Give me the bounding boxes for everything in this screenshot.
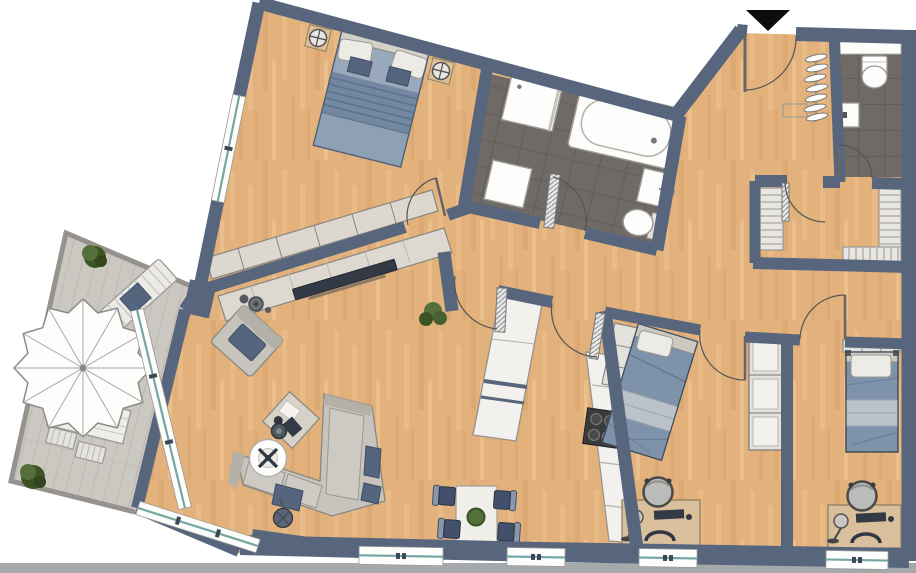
dining-chair xyxy=(437,518,460,539)
floor-plan xyxy=(0,0,916,573)
decor-bowl xyxy=(265,307,271,313)
keyboard xyxy=(654,509,684,520)
living-door-leaf xyxy=(495,288,507,332)
keyboard xyxy=(856,512,886,523)
wall-storage-top-c xyxy=(872,183,909,184)
window-kid1 xyxy=(639,548,697,567)
wall-top-right xyxy=(796,34,909,37)
nightstand-lamp-left xyxy=(305,25,332,52)
guest-toilet xyxy=(862,56,887,88)
wall-kid2-top xyxy=(845,342,909,344)
window-dining xyxy=(507,547,565,566)
dining-chair xyxy=(432,485,455,506)
sofa-chaise-cushion xyxy=(326,408,364,500)
kid2-bed xyxy=(845,350,899,452)
mouse xyxy=(888,516,894,522)
wall-storage-bottom xyxy=(753,263,909,267)
dining-chair xyxy=(493,489,516,510)
decor-bowl xyxy=(240,295,249,304)
kid1-chair xyxy=(644,478,673,507)
sofa-pillow xyxy=(361,483,381,504)
floor-plan-page xyxy=(0,0,916,573)
window-living xyxy=(359,546,443,565)
shelf-left xyxy=(760,188,783,250)
washing-machine xyxy=(484,160,532,208)
wall-living-pier xyxy=(444,252,452,311)
sofa-pillow xyxy=(364,446,381,478)
desk-lamp-head xyxy=(834,514,848,528)
nightstand-lamp-right xyxy=(428,58,455,85)
shelf-right xyxy=(879,188,901,250)
coffee-table xyxy=(250,440,287,477)
table-plant xyxy=(468,509,485,526)
wall-entry-stub xyxy=(737,31,747,32)
kid2-chair xyxy=(848,482,877,511)
dining-chair xyxy=(497,521,520,542)
mouse xyxy=(686,514,692,520)
window-kid2 xyxy=(826,550,888,569)
